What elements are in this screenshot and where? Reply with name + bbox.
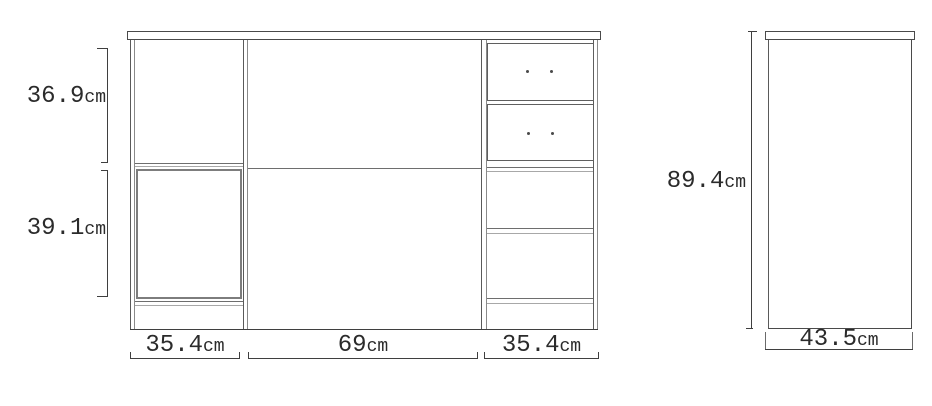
- side-height-dim-line: [751, 31, 752, 329]
- right-shelf-line-2: [487, 298, 593, 299]
- lower-height-dim-cap-top: [101, 170, 108, 171]
- front-left-wall: [130, 40, 135, 330]
- side-height-label: 89.4cm: [655, 170, 746, 195]
- upper-height-value: 36.9: [27, 83, 85, 110]
- lower-height-value: 39.1: [27, 215, 85, 242]
- upper-height-label: 36.9cm: [18, 85, 106, 110]
- right-drawer-base-line-shadow: [487, 171, 593, 172]
- side-height-unit: cm: [724, 173, 746, 193]
- left-width-value: 35.4: [145, 332, 203, 359]
- center-shelf-line: [248, 168, 481, 169]
- lower-height-label: 39.1cm: [18, 217, 106, 242]
- drawer-upper-knob-left: [526, 70, 529, 73]
- side-top-panel: [765, 31, 915, 40]
- center-width-unit: cm: [367, 337, 389, 357]
- right-shelf-line-2-shadow: [487, 303, 593, 304]
- drawer-lower-knob-right: [551, 132, 554, 135]
- right-width-unit: cm: [560, 337, 582, 357]
- drawer-upper: [487, 43, 594, 101]
- center-width-label: 69cm: [248, 334, 478, 359]
- left-width-label: 35.4cm: [130, 334, 240, 359]
- left-plinth-line-shadow: [135, 305, 243, 306]
- upper-height-dim-cap-top: [97, 48, 108, 49]
- left-plinth-line: [135, 301, 243, 302]
- left-shelf-line-shadow: [135, 166, 243, 167]
- lower-height-unit: cm: [84, 220, 106, 240]
- drawer-upper-knob-right: [550, 70, 553, 73]
- dimension-drawing: 36.9cm 39.1cm 35.4cm 69cm 35.4cm: [0, 0, 932, 406]
- side-body: [768, 40, 912, 329]
- front-bottom-edge: [130, 329, 598, 330]
- left-shelf-line: [135, 163, 243, 164]
- front-top-panel: [127, 31, 601, 40]
- front-divider-left: [243, 40, 248, 330]
- side-depth-label: 43.5cm: [765, 328, 913, 353]
- right-width-value: 35.4: [502, 332, 560, 359]
- side-depth-value: 43.5: [799, 326, 857, 353]
- side-height-value: 89.4: [667, 168, 725, 195]
- side-depth-unit: cm: [857, 331, 879, 351]
- left-width-unit: cm: [203, 337, 225, 357]
- drawer-lower-knob-left: [527, 132, 530, 135]
- lower-height-dim-cap-bottom: [97, 296, 108, 297]
- right-drawer-base-line: [487, 167, 593, 168]
- right-shelf-line-1: [487, 228, 593, 229]
- door-panel: [136, 169, 242, 299]
- upper-height-dim-cap-bottom: [101, 162, 108, 163]
- upper-height-dim-line: [107, 48, 108, 162]
- side-height-dim-tick-top: [748, 31, 757, 32]
- center-width-value: 69: [338, 332, 367, 359]
- upper-height-unit: cm: [84, 88, 106, 108]
- right-shelf-line-1-shadow: [487, 233, 593, 234]
- right-width-label: 35.4cm: [484, 334, 599, 359]
- drawer-lower: [487, 104, 594, 161]
- lower-height-dim-line: [107, 170, 108, 297]
- side-height-dim-tick-bottom: [746, 328, 753, 329]
